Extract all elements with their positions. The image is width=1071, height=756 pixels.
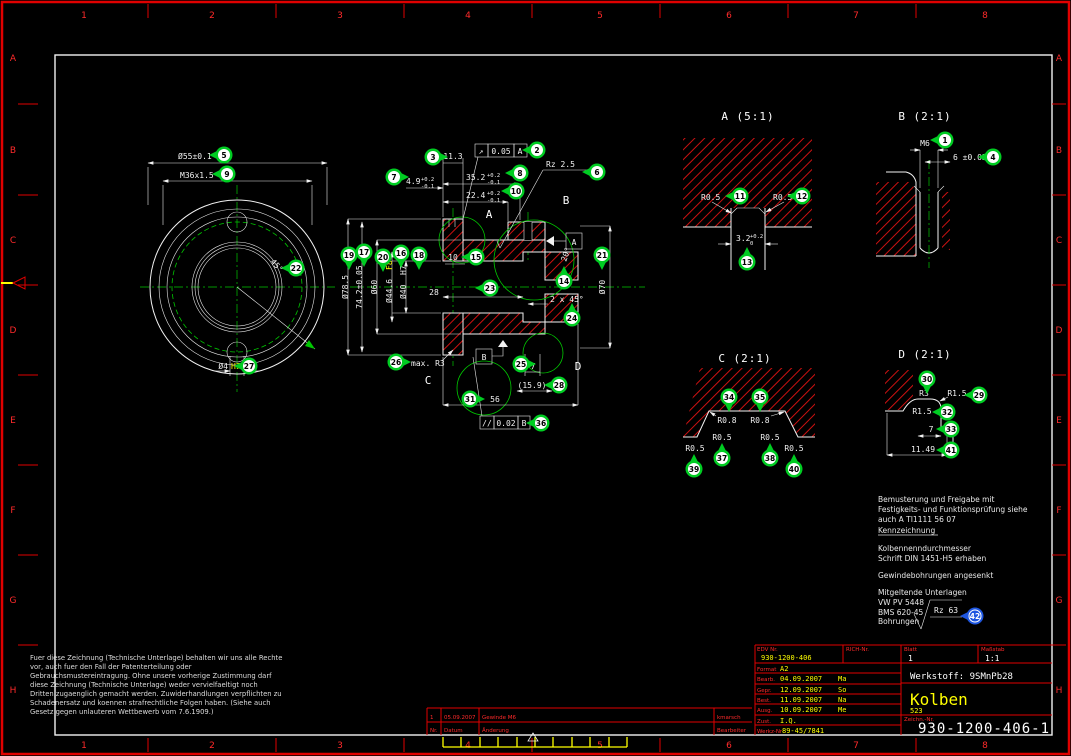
balloon-8: 8	[505, 165, 529, 182]
detail-b-title: B (2:1)	[898, 110, 951, 123]
balloon-18: 18	[411, 247, 428, 271]
revision-table: 1 05.09.2007 Gewinde M6 kmarsch Nr. Datu…	[427, 708, 752, 735]
legal-line: Gesetz gegen unlauteren Wettbewerb vom 7…	[30, 708, 214, 716]
balloon-4: 4	[978, 149, 1002, 166]
zone-letter: C	[1056, 236, 1062, 246]
note-bohrungen-label: Bohrungen	[878, 617, 919, 626]
parallel-datum-ref: B	[522, 419, 527, 428]
balloon-number-31: 31	[465, 395, 475, 404]
balloon-17: 17	[356, 244, 373, 268]
dim-22-4: 22.4	[466, 191, 485, 200]
revision-header-bearbeiter: Bearbeiter	[717, 728, 747, 734]
dim-thread-m6: M6	[920, 139, 930, 148]
balloon-number-25: 25	[516, 360, 526, 369]
zone-letter: H	[1056, 686, 1063, 696]
radius-label: R0.8	[750, 416, 769, 425]
zone-letter: C	[10, 236, 16, 246]
row-label: Gepr.	[757, 688, 772, 694]
dim-dia-44-6: Ø44.6	[384, 279, 394, 303]
zone-number: 1	[81, 11, 87, 21]
balloon-number-7: 7	[391, 173, 396, 182]
zone-number: 6	[726, 741, 732, 751]
detail-view-d: D (2:1) R3 R1.5 R1.5 7 11.49	[885, 348, 967, 455]
row-date: 12.09.2007	[780, 686, 822, 694]
balloon-number-42: 42	[970, 612, 980, 621]
edv-label: EDV Nr.	[757, 647, 778, 653]
balloon-26: 26	[388, 354, 412, 371]
zone-letter: F	[1056, 506, 1061, 516]
format-value: A2	[780, 665, 788, 673]
row-sign: Ma	[838, 675, 846, 683]
balloon-33: 33	[936, 421, 960, 438]
radius-label: R0.5	[701, 193, 720, 202]
radius-label: R0.5	[685, 444, 704, 453]
runout-tolerance: 0.05	[491, 147, 510, 156]
balloon-number-38: 38	[765, 454, 775, 463]
dim-dia-70: Ø70	[597, 280, 607, 295]
balloon-number-1: 1	[942, 136, 947, 145]
dim-chamfer: 2 x 45°	[550, 295, 584, 304]
balloon-number-36: 36	[536, 419, 546, 428]
format-label: Format	[757, 667, 777, 673]
balloon-number-17: 17	[359, 248, 369, 257]
zone-letter: E	[10, 416, 16, 426]
row-label: Best.	[757, 698, 771, 704]
legal-line: diese Zeichnung (Technische Unterlage) w…	[30, 681, 258, 689]
dim-small-hole: Ø4	[218, 361, 228, 371]
note-line: Schrift DIN 1451-H5 erhaben	[878, 554, 986, 563]
balloon-6: 6	[582, 164, 606, 181]
balloon-number-4: 4	[990, 153, 995, 162]
balloon-27: 27	[234, 358, 258, 375]
balloon-29: 29	[964, 387, 988, 404]
dim-groove-width-dn: 0	[750, 241, 753, 247]
radius-label: R1.5	[947, 389, 966, 398]
zone-number: 4	[465, 741, 471, 751]
row-label: Bearb.	[757, 677, 775, 683]
row-sign: Me	[838, 706, 846, 714]
balloon-number-27: 27	[244, 362, 254, 371]
legal-line: Dritten zugaenglich gemacht werden. Zuwi…	[30, 690, 282, 698]
zone-letter: A	[10, 54, 17, 64]
edge-marker	[1, 277, 25, 289]
revision-header-nr: Nr.	[430, 728, 438, 734]
balloon-number-40: 40	[789, 465, 799, 474]
werkstoff-value: Werkstoff: 9SMnPb28	[910, 672, 1013, 682]
dim-thread: M36x1.5	[180, 171, 214, 180]
datum-a-label: A	[572, 238, 577, 247]
balloon-number-6: 6	[594, 168, 599, 177]
detail-view-b: B (2:1) M6 6 ±0.05	[876, 110, 987, 268]
zone-numbers-top: 1 2 3 4 5 6 7 8	[81, 11, 988, 21]
rz63-value: Rz 63	[934, 606, 958, 615]
balloon-number-11: 11	[735, 192, 745, 201]
row-sign: So	[838, 686, 846, 694]
dim-22-4-up: +0.2	[487, 191, 500, 197]
parallel-tolerance: 0.02	[496, 419, 515, 428]
balloon-number-13: 13	[742, 258, 752, 267]
masstab-value: 1:1	[985, 654, 1000, 663]
balloon-number-37: 37	[717, 454, 727, 463]
balloon-number-10: 10	[511, 187, 521, 196]
runout-symbol-icon: ↗	[479, 147, 484, 156]
balloon-10: 10	[501, 183, 525, 200]
note-line: Festigkeits- und Funktionsprüfung siehe	[878, 505, 1028, 514]
balloon-number-15: 15	[471, 253, 481, 262]
balloon-number-30: 30	[922, 375, 932, 384]
balloon-number-22: 22	[291, 264, 301, 273]
note-line: auch A TI1111 56 07	[878, 515, 956, 524]
balloon-number-41: 41	[946, 446, 956, 455]
row-sign: Na	[838, 696, 846, 704]
balloon-40: 40	[786, 454, 803, 478]
front-view: Ø55±0.1 M36x1.5 45° Ø4 H7	[140, 151, 335, 392]
balloon-number-16: 16	[396, 249, 406, 258]
runout-datum-ref: A	[518, 147, 523, 156]
balloon-number-24: 24	[567, 314, 577, 323]
balloon-22: 22	[281, 260, 305, 277]
note-heading-kennzeichnung: Kennzeichnung	[878, 526, 935, 535]
balloon-number-14: 14	[559, 277, 569, 286]
zone-letter: H	[10, 686, 17, 696]
radius-label: R1.5	[912, 407, 931, 416]
balloon-16: 16	[393, 245, 410, 269]
masstab-label: Maßstab	[981, 647, 1005, 653]
title-block: EDV Nr. 930-1200-406 RICH-Nr. Blatt 1 Ma…	[755, 645, 1052, 737]
zone-letter: F	[10, 506, 15, 516]
detail-c-title: C (2:1)	[718, 352, 771, 365]
parallel-symbol-icon: //	[482, 419, 492, 428]
blatt-value: 1	[908, 654, 913, 663]
part-sub-number: 523	[910, 707, 923, 715]
radius-label: R0.8	[717, 416, 736, 425]
dim-11-49: 11.49	[911, 445, 935, 454]
dim-4-9-dn: -0.1	[421, 184, 434, 190]
radius-label: R0.5	[784, 444, 803, 453]
detail-view-c: C (2:1) R0.8 R0.8 R0.5 R0.5 R0.5 R0.5	[683, 352, 815, 453]
dim-74-2: 74.2±0.05	[355, 265, 364, 309]
revision-triangle-mark	[528, 733, 538, 741]
dim-7-detail: 7	[929, 425, 934, 434]
dim-35-2-dn: -0.1	[487, 180, 500, 186]
zone-letter: G	[1056, 596, 1063, 606]
dim-max-r3: max. R3	[411, 359, 445, 368]
revision-nr: 1	[430, 715, 434, 721]
zone-letter: A	[1056, 54, 1063, 64]
balloon-39: 39	[686, 454, 703, 478]
zust-value: I.Q.	[780, 717, 797, 725]
zone-number: 1	[81, 741, 87, 751]
legal-line: Schadenersatz und koennen strafrechtlich…	[30, 699, 271, 707]
dim-outer-diameter: Ø55±0.1	[178, 151, 212, 161]
balloon-5: 5	[209, 147, 233, 164]
datum-b-label: B	[482, 353, 487, 362]
zone-letter: B	[1056, 146, 1062, 156]
balloon-number-28: 28	[554, 381, 564, 390]
balloon-37: 37	[714, 443, 731, 467]
revision-header-aenderung: Änderung	[482, 727, 509, 734]
zone-number: 6	[726, 11, 732, 21]
balloon-number-32: 32	[942, 408, 952, 417]
row-date: 04.09.2007	[780, 675, 822, 683]
zone-number: 8	[982, 11, 988, 21]
dim-4-9-up: +0.2	[421, 177, 434, 183]
balloon-number-39: 39	[689, 465, 699, 474]
detail-letter-c: C	[425, 374, 432, 387]
zust-label: Zust.	[757, 719, 771, 725]
zone-number: 8	[982, 741, 988, 751]
dim-dia-78-5: Ø78.5	[340, 275, 350, 299]
balloon-number-26: 26	[391, 358, 401, 367]
edv-value: 930-1200-406	[761, 654, 812, 662]
zone-number: 5	[597, 11, 603, 21]
zone-letter: E	[1056, 416, 1062, 426]
dim-28: 28	[429, 288, 439, 297]
balloon-number-12: 12	[797, 192, 807, 201]
balloon-21: 21	[594, 247, 611, 271]
balloon-32: 32	[932, 404, 956, 421]
dim-dia-60: Ø60	[369, 280, 379, 295]
rich-label: RICH-Nr.	[846, 647, 869, 653]
balloon-number-21: 21	[597, 251, 607, 260]
detail-a-title: A (5:1)	[721, 110, 774, 123]
note-line: Kolbennenndurchmesser	[878, 544, 972, 553]
row-label: Ausg.	[757, 708, 773, 714]
radius-label: R0.5	[760, 433, 779, 442]
balloon-number-35: 35	[755, 393, 765, 402]
werkz-value: 89-45/7841	[782, 727, 824, 735]
legal-text-block: Fuer diese Zeichnung (Technische Unterla…	[30, 654, 282, 716]
note-line: Bemusterung und Freigabe mit	[878, 495, 995, 504]
balloon-number-5: 5	[221, 151, 226, 160]
zone-number: 3	[337, 741, 343, 751]
balloon-number-18: 18	[414, 251, 424, 260]
dim-10: 10	[448, 253, 458, 262]
dim-35-2: 35.2	[466, 173, 485, 182]
balloon-38: 38	[762, 443, 779, 467]
balloon-number-2: 2	[534, 146, 539, 155]
balloon-number-33: 33	[946, 425, 956, 434]
zone-letter: B	[10, 146, 16, 156]
zone-number: 5	[597, 741, 603, 751]
zone-number: 7	[853, 741, 859, 751]
revision-header-datum: Datum	[444, 728, 463, 734]
detail-letter-a: A	[486, 208, 493, 221]
zone-letter: D	[10, 326, 17, 336]
dim-56: 56	[490, 395, 500, 404]
zone-number: 2	[209, 741, 215, 751]
row-date: 10.09.2007	[780, 706, 822, 714]
zone-number: 4	[465, 11, 471, 21]
balloon-41: 41	[936, 442, 960, 459]
balloon-13: 13	[739, 247, 756, 271]
rz-value: Rz 2.5	[546, 160, 575, 169]
detail-view-a: A (5:1) 3.2 +0.2 0 R0.5 R0.5	[683, 110, 812, 270]
dim-angle-45: 45°	[269, 257, 285, 274]
balloon-9: 9	[212, 166, 236, 183]
detail-letter-b: B	[563, 194, 570, 207]
balloon-number-23: 23	[485, 284, 495, 293]
zone-number: 7	[853, 11, 859, 21]
note-line: VW PV 5448	[878, 598, 924, 607]
revision-change: Gewinde M6	[482, 715, 517, 721]
balloon-number-9: 9	[224, 170, 229, 179]
note-line: Gewindebohrungen angesenkt	[878, 571, 993, 580]
dim-groove-width-up: +0.2	[750, 234, 763, 240]
dim-15-9: (15.9)	[518, 381, 547, 390]
cad-drawing-sheet: 1 2 3 4 5 6 7 8 1 2 3 4 5 6 7 8 A B C D …	[0, 0, 1071, 756]
drawing-number: 930-1200-406-1	[918, 721, 1050, 737]
detail-d-title: D (2:1)	[898, 348, 951, 361]
dim-4-9: 4.9	[406, 177, 421, 186]
balloon-number-29: 29	[974, 391, 984, 400]
zone-number: 2	[209, 11, 215, 21]
balloon-42: 42	[960, 608, 984, 625]
dim-dia-40: Ø40	[398, 284, 408, 299]
werkz-label: Werkz-Nr	[757, 729, 783, 735]
revision-author: kmarsch	[717, 715, 741, 721]
revision-date: 05.09.2007	[444, 715, 476, 721]
zone-letters-left: A B C D E F G H	[10, 54, 17, 696]
balloon-1: 1	[930, 132, 954, 149]
datum-b-flag: B	[476, 340, 508, 364]
balloon-number-34: 34	[724, 393, 734, 402]
balloon-number-19: 19	[344, 251, 354, 260]
zone-letter: G	[10, 596, 17, 606]
legal-line: Fuer diese Zeichnung (Technische Unterla…	[30, 654, 282, 662]
dim-22-4-dn: -0.1	[487, 198, 500, 204]
note-line: BMS 620-45	[878, 608, 924, 617]
balloon-number-20: 20	[378, 253, 388, 262]
dim-groove-width: 3.2	[736, 234, 751, 243]
section-arrow	[305, 340, 315, 349]
legal-line: vor, auch fuer den Fall der Patenterteil…	[30, 663, 192, 671]
radius-label: R0.5	[773, 193, 792, 202]
radius-label: R0.5	[712, 433, 731, 442]
blatt-label: Blatt	[904, 647, 918, 653]
zone-number: 3	[337, 11, 343, 21]
balloon-number-3: 3	[430, 153, 435, 162]
row-date: 11.09.2007	[780, 696, 822, 704]
balloon-number-8: 8	[517, 169, 522, 178]
dim-35-2-up: +0.2	[487, 173, 500, 179]
balloon-23: 23	[475, 280, 499, 297]
note-line: Mitgeltende Unterlagen	[878, 588, 967, 597]
notes-block: Bemusterung und Freigabe mit Festigkeits…	[878, 495, 1028, 629]
zone-letter: D	[1056, 326, 1063, 336]
legal-line: Gebrauchsmustereintragung. Ohne unsere v…	[30, 672, 272, 680]
